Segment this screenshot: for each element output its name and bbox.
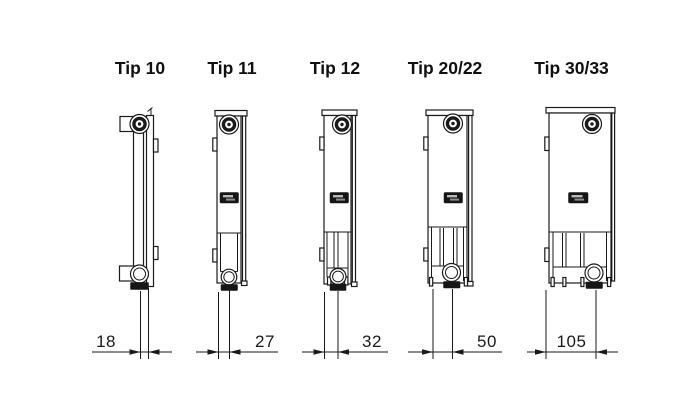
- top-valve-fitting-icon: [583, 115, 602, 134]
- top-valve-fitting-icon: [333, 115, 352, 134]
- arrow-left-icon: [422, 349, 433, 354]
- arrow-left-icon: [314, 349, 325, 354]
- foot: [563, 278, 566, 287]
- rear-fin-foot: [468, 282, 474, 287]
- rear-fin-foot: [352, 282, 358, 287]
- radiator-tip-11-drawing: [213, 111, 247, 291]
- dimension-value-tip-12: 32: [362, 332, 382, 351]
- rear-fin: [612, 113, 615, 281]
- top-grille-cap: [546, 108, 615, 114]
- panel-clip: [424, 137, 428, 150]
- brand-badge: [330, 193, 349, 204]
- bottom-base-block: [444, 282, 461, 289]
- foot: [551, 278, 554, 287]
- radiator-tip-10-drawing: [120, 108, 159, 290]
- arrow-right-icon: [453, 349, 464, 354]
- dimension-tip-11: 27: [196, 285, 278, 359]
- panel-clip: [154, 247, 159, 260]
- foot: [430, 278, 433, 287]
- dimension-tip-30-33: 105: [527, 290, 618, 359]
- top-valve-fitting-icon: [444, 114, 463, 133]
- top-valve-fitting-icon: [130, 115, 149, 134]
- foot: [464, 278, 467, 287]
- dimension-tip-12: 32: [302, 291, 388, 359]
- panel-clip: [213, 249, 217, 262]
- extension-lines: [325, 291, 339, 359]
- bottom-base-block: [330, 284, 346, 291]
- radiator-tip-20-22-drawing: [424, 110, 473, 288]
- type-label-tip-20-22: Tip 20/22: [408, 58, 483, 78]
- bottom-connection-icon: [221, 269, 237, 285]
- dimension-tip-20-22: 50: [408, 289, 502, 359]
- arrow-left-icon: [535, 349, 546, 354]
- panel-clip: [424, 248, 428, 261]
- supply-pipe: [134, 131, 144, 267]
- arrow-right-icon: [338, 349, 349, 354]
- rear-fin: [352, 116, 355, 283]
- arrow-right-icon: [149, 349, 160, 354]
- rear-fin: [243, 116, 246, 282]
- panel-clip: [320, 137, 324, 150]
- radiator-type-diagram: Tip 10 Tip 11 Tip 12 Tip 20/22 Tip 30/33: [0, 0, 700, 407]
- extension-lines: [141, 288, 149, 359]
- arrow-left-icon: [130, 349, 141, 354]
- top-grille-cap: [322, 110, 357, 116]
- type-label-tip-10: Tip 10: [115, 58, 166, 78]
- type-label-tip-11: Tip 11: [207, 58, 257, 78]
- foot: [581, 278, 584, 287]
- bottom-connection-icon: [443, 264, 461, 282]
- diagram-svg: Tip 10 Tip 11 Tip 12 Tip 20/22 Tip 30/33: [0, 0, 700, 407]
- type-label-tip-12: Tip 12: [310, 58, 361, 78]
- arrow-right-icon: [596, 349, 607, 354]
- extension-lines: [219, 285, 230, 359]
- type-label-tip-30-33: Tip 30/33: [534, 58, 609, 78]
- rear-fin-foot: [242, 281, 248, 286]
- panel-clip: [545, 137, 549, 151]
- bottom-connection-icon: [330, 269, 346, 285]
- panel-profile: [147, 116, 154, 287]
- arrow-right-icon: [230, 349, 241, 354]
- bottom-base-block: [586, 282, 603, 289]
- extension-lines: [433, 289, 453, 359]
- bottom-connection-icon: [585, 264, 603, 282]
- radiator-tip-12-drawing: [320, 110, 357, 291]
- brand-badge: [444, 193, 463, 204]
- top-valve-fitting-icon: [220, 115, 239, 134]
- brand-badge: [569, 193, 589, 204]
- dimension-value-tip-10: 18: [96, 332, 116, 351]
- panel-clip: [545, 248, 549, 262]
- type-labels-row: Tip 10 Tip 11 Tip 12 Tip 20/22 Tip 30/33: [115, 58, 609, 78]
- rear-fin: [469, 116, 472, 282]
- bottom-connection-icon: [131, 265, 149, 283]
- arrow-left-icon: [208, 349, 219, 354]
- dimension-tip-10: 18: [92, 288, 172, 359]
- air-vent-icon: [148, 108, 153, 117]
- bottom-base-block: [131, 283, 149, 290]
- radiator-tip-30-33-drawing: [545, 108, 615, 289]
- dimension-value-tip-20-22: 50: [477, 332, 497, 351]
- panel-clip: [213, 138, 217, 151]
- panel-clip: [320, 248, 324, 261]
- brand-badge: [220, 193, 239, 204]
- dimension-value-tip-30-33: 105: [557, 332, 587, 351]
- foot: [608, 278, 611, 287]
- panel-clip: [154, 139, 159, 152]
- dimension-value-tip-11: 27: [255, 332, 275, 351]
